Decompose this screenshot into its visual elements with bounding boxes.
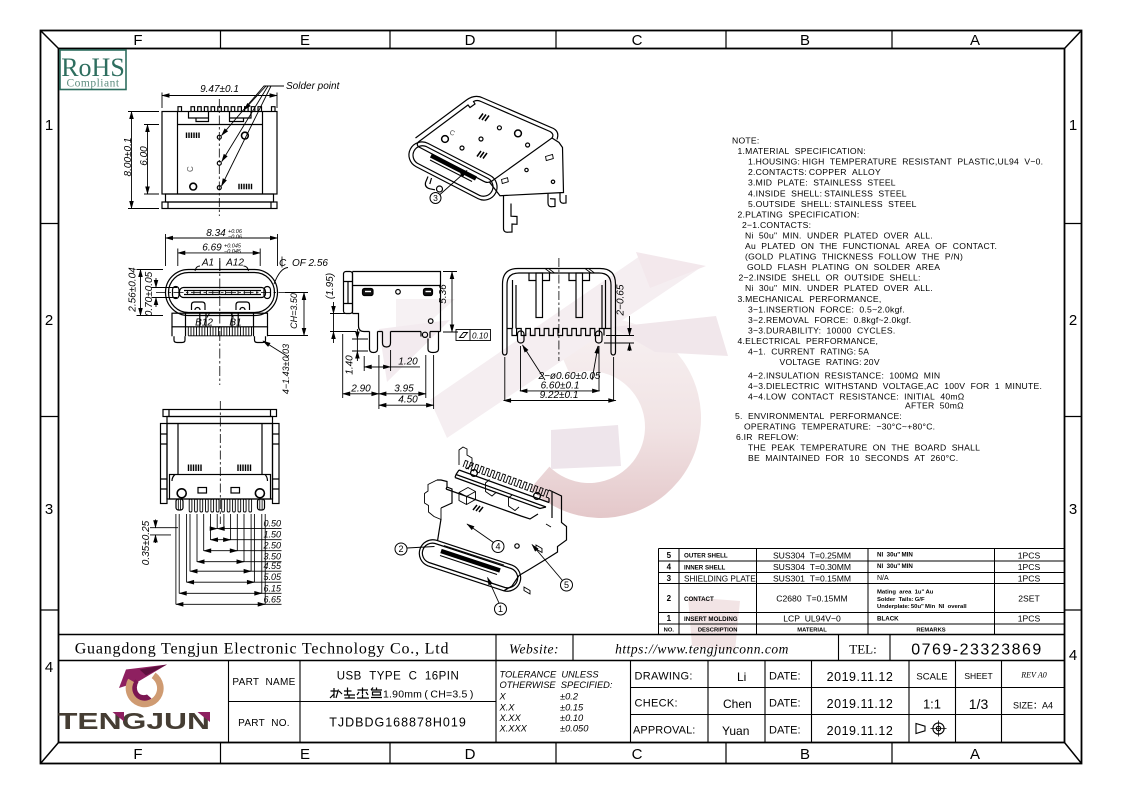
svg-text:INNER SHELL: INNER SHELL bbox=[684, 564, 725, 571]
svg-text:6.00: 6.00 bbox=[139, 146, 150, 166]
svg-text:C: C bbox=[632, 746, 643, 763]
svg-text:CONTACT: CONTACT bbox=[684, 596, 714, 603]
svg-text:B1: B1 bbox=[229, 318, 241, 329]
svg-text:6.15: 6.15 bbox=[263, 583, 282, 593]
svg-text:2: 2 bbox=[667, 594, 672, 603]
svg-text:X.XXX: X.XXX bbox=[499, 724, 528, 734]
svg-text:4−2.INSULATION RESISTANCE: 1: 4−2.INSULATION RESISTANCE: 100MΩ MIN bbox=[748, 371, 940, 381]
svg-text:3.50: 3.50 bbox=[263, 552, 281, 562]
svg-text:4: 4 bbox=[1069, 647, 1077, 664]
svg-text:F: F bbox=[133, 746, 142, 763]
svg-text:5: 5 bbox=[564, 580, 569, 590]
svg-text:3: 3 bbox=[1069, 501, 1077, 518]
svg-text:9.22±0.1: 9.22±0.1 bbox=[540, 390, 579, 401]
svg-text:SHEET: SHEET bbox=[964, 671, 992, 681]
svg-text:4: 4 bbox=[45, 659, 53, 676]
svg-text:SHIELDING PLATE: SHIELDING PLATE bbox=[684, 574, 756, 583]
svg-text:C: C bbox=[632, 32, 643, 49]
svg-text:AFTER 50mΩ: AFTER 50mΩ bbox=[905, 400, 964, 410]
svg-text:OPERATING TEMPERATURE: −30°C: OPERATING TEMPERATURE: −30°C~+80°C. bbox=[744, 421, 935, 431]
svg-text:Au PLATED ON THE FUNCTIONA: Au PLATED ON THE FUNCTIONAL AREA OF CONT… bbox=[745, 241, 997, 251]
svg-text:4: 4 bbox=[667, 562, 672, 571]
svg-text:1/3: 1/3 bbox=[969, 696, 989, 712]
svg-text:3: 3 bbox=[667, 574, 672, 583]
svg-text:SIZE：A4: SIZE：A4 bbox=[1013, 701, 1053, 711]
svg-text:Solder Tails: G/F: Solder Tails: G/F bbox=[877, 597, 925, 603]
svg-text:2.56±0.04: 2.56±0.04 bbox=[128, 267, 139, 313]
svg-text:4.55: 4.55 bbox=[263, 561, 282, 571]
svg-text:TOLERANCE UNLESS: TOLERANCE UNLESS bbox=[500, 670, 600, 680]
svg-text:±0.2: ±0.2 bbox=[560, 692, 579, 702]
svg-text:BLACK: BLACK bbox=[877, 615, 899, 622]
svg-text:2−0.65: 2−0.65 bbox=[616, 284, 627, 316]
svg-text:Solder point: Solder point bbox=[286, 81, 341, 92]
svg-text:5.OUTSIDE SHELL: STAINLESS S: 5.OUTSIDE SHELL: STAINLESS STEEL bbox=[748, 199, 917, 209]
svg-text:CHECK:: CHECK: bbox=[635, 698, 678, 710]
svg-text:±0.050: ±0.050 bbox=[560, 724, 589, 734]
svg-text:REV A0: REV A0 bbox=[1020, 671, 1047, 680]
svg-text:SUS304 T=0.25MM: SUS304 T=0.25MM bbox=[773, 550, 851, 560]
svg-text:GOLD FLASH PLATING ON SOLD: GOLD FLASH PLATING ON SOLDER AREA bbox=[747, 262, 940, 272]
svg-text:Ni 50u" MIN. UNDER PLATED: Ni 50u" MIN. UNDER PLATED OVER ALL. bbox=[745, 231, 933, 241]
svg-text:3: 3 bbox=[433, 193, 438, 203]
svg-text:2.90: 2.90 bbox=[350, 383, 371, 394]
svg-text:±0.10: ±0.10 bbox=[560, 713, 584, 723]
svg-text:NI 30u" MIN: NI 30u" MIN bbox=[877, 552, 913, 559]
svg-text:TENGJUN: TENGJUN bbox=[58, 708, 210, 734]
svg-text:4.50: 4.50 bbox=[398, 395, 418, 406]
svg-text:2019.11.12: 2019.11.12 bbox=[827, 697, 894, 711]
svg-text:5.05: 5.05 bbox=[263, 572, 282, 582]
svg-text:1: 1 bbox=[45, 117, 53, 134]
svg-text:−0.06: −0.06 bbox=[228, 235, 243, 241]
svg-text:±0.15: ±0.15 bbox=[560, 703, 584, 713]
svg-text:APPROVAL:: APPROVAL: bbox=[633, 725, 695, 737]
svg-text:DRAWING:: DRAWING: bbox=[635, 671, 693, 683]
svg-text:1.HOUSING: HIGH TEMPERATURE: 1.HOUSING: HIGH TEMPERATURE RESISTANT PL… bbox=[748, 157, 1043, 167]
svg-text:2.50: 2.50 bbox=[262, 541, 281, 551]
svg-text:5. ENVIRONMENTAL PERFORMANCE: 5. ENVIRONMENTAL PERFORMANCE: bbox=[735, 411, 902, 421]
svg-text:Ni 30u" MIN. UNDER PLATED: Ni 30u" MIN. UNDER PLATED OVER ALL. bbox=[745, 283, 933, 293]
svg-text:1: 1 bbox=[667, 614, 672, 623]
svg-text:0.70±0.05: 0.70±0.05 bbox=[144, 271, 155, 316]
svg-text:Website:: Website: bbox=[509, 642, 559, 657]
svg-text:1PCS: 1PCS bbox=[1018, 562, 1041, 572]
svg-text:OTHERWISE SPECIFIED:: OTHERWISE SPECIFIED: bbox=[500, 680, 613, 690]
svg-text:B: B bbox=[800, 746, 810, 763]
svg-text:3.MID PLATE: STAINLESS STEE: 3.MID PLATE: STAINLESS STEEL bbox=[748, 178, 896, 188]
svg-text:B12: B12 bbox=[195, 318, 213, 329]
svg-text:DATE:: DATE: bbox=[769, 698, 801, 710]
svg-text:1.40: 1.40 bbox=[345, 355, 356, 375]
svg-text:C: C bbox=[186, 166, 195, 172]
svg-text:DATE:: DATE: bbox=[769, 671, 801, 683]
svg-text:1.90mm ( CH=3.5 ): 1.90mm ( CH=3.5 ) bbox=[383, 689, 474, 701]
svg-text:1PCS: 1PCS bbox=[1018, 613, 1041, 623]
svg-text:USB TYPE C 16PIN: USB TYPE C 16PIN bbox=[337, 671, 460, 683]
svg-text:4−1.43±0.03: 4−1.43±0.03 bbox=[281, 344, 291, 394]
svg-text:6.65: 6.65 bbox=[263, 594, 282, 604]
svg-text:SCALE: SCALE bbox=[916, 672, 947, 683]
svg-text:4: 4 bbox=[495, 542, 500, 552]
svg-text:CH=3.50: CH=3.50 bbox=[289, 293, 299, 329]
svg-text:NOTE:: NOTE: bbox=[732, 136, 760, 146]
svg-text:Underplate: 50u" Min NI over: Underplate: 50u" Min NI overall bbox=[877, 604, 967, 610]
svg-text:Guangdong Tengjun Electronic T: Guangdong Tengjun Electronic Technology … bbox=[75, 641, 450, 658]
svg-text:C2680 T=0.15MM: C2680 T=0.15MM bbox=[776, 593, 847, 603]
svg-text:−0.045: −0.045 bbox=[224, 249, 242, 255]
svg-text:F: F bbox=[133, 32, 142, 49]
svg-text:2−2.INSIDE SHELL OR OUTSIDE: 2−2.INSIDE SHELL OR OUTSIDE SHELL: bbox=[739, 273, 921, 283]
svg-text:2019.11.12: 2019.11.12 bbox=[827, 670, 894, 684]
svg-text:INSERT MOLDING: INSERT MOLDING bbox=[684, 616, 738, 623]
svg-text:1.50: 1.50 bbox=[263, 530, 281, 540]
svg-text:NI 30u" MIN: NI 30u" MIN bbox=[877, 563, 913, 570]
svg-text:OF 2.56: OF 2.56 bbox=[292, 258, 328, 269]
svg-text:4.ELECTRICAL PERFORMANCE,: 4.ELECTRICAL PERFORMANCE, bbox=[738, 336, 879, 346]
svg-text:0.35±0.25: 0.35±0.25 bbox=[141, 520, 152, 565]
svg-text:4−3.DIELECTRIC WITHSTAND VOL: 4−3.DIELECTRIC WITHSTAND VOLTAGE,AC 100V… bbox=[748, 381, 1042, 391]
svg-text:VOLTAGE RATING: 20V: VOLTAGE RATING: 20V bbox=[780, 357, 880, 367]
svg-text:3−2.REMOVAL FORCE: 0.8kgf~2.: 3−2.REMOVAL FORCE: 0.8kgf~2.0kgf. bbox=[748, 315, 911, 325]
svg-text:1PCS: 1PCS bbox=[1018, 550, 1041, 560]
svg-text:B: B bbox=[800, 32, 810, 49]
svg-text:0.50: 0.50 bbox=[263, 519, 281, 529]
svg-text:2: 2 bbox=[1069, 312, 1077, 329]
svg-text:8.34: 8.34 bbox=[206, 228, 226, 239]
svg-text:A: A bbox=[970, 32, 980, 49]
svg-text:D: D bbox=[465, 746, 476, 763]
svg-text:SUS304 T=0.30MM: SUS304 T=0.30MM bbox=[773, 562, 851, 572]
svg-text:1.MATERIAL SPECIFICATION:: 1.MATERIAL SPECIFICATION: bbox=[738, 146, 866, 156]
svg-text:NO.: NO. bbox=[664, 628, 675, 634]
svg-text:2019.11.12: 2019.11.12 bbox=[827, 724, 894, 738]
svg-text:2.PLATING SPECIFICATION:: 2.PLATING SPECIFICATION: bbox=[738, 209, 860, 219]
svg-text:D: D bbox=[465, 32, 476, 49]
svg-text:Mating area 1u" Au: Mating area 1u" Au bbox=[877, 590, 934, 596]
svg-text:https://www.tengjunconn.com: https://www.tengjunconn.com bbox=[615, 642, 789, 657]
svg-text:X: X bbox=[499, 692, 507, 702]
svg-text:LCP UL94V−0: LCP UL94V−0 bbox=[783, 613, 841, 623]
svg-text:3−1.INSERTION FORCE: 0.5~2.0: 3−1.INSERTION FORCE: 0.5~2.0kgf. bbox=[748, 304, 905, 314]
svg-text:2: 2 bbox=[398, 544, 403, 554]
svg-text:6.69: 6.69 bbox=[202, 243, 222, 254]
svg-text:Chen: Chen bbox=[723, 697, 752, 711]
svg-text:2SET: 2SET bbox=[1018, 593, 1040, 603]
svg-text:0.10: 0.10 bbox=[472, 331, 488, 340]
svg-text:2: 2 bbox=[45, 312, 53, 329]
svg-text:1PCS: 1PCS bbox=[1018, 573, 1041, 583]
svg-text:A1: A1 bbox=[201, 258, 214, 269]
svg-text:5: 5 bbox=[667, 551, 672, 560]
svg-text:2−1.CONTACTS:: 2−1.CONTACTS: bbox=[742, 220, 811, 230]
svg-text:X.XX: X.XX bbox=[499, 713, 522, 723]
svg-text:BE MAINTAINED FOR 10 SECON: BE MAINTAINED FOR 10 SECONDS AT 260°C. bbox=[748, 453, 958, 463]
svg-text:PART NAME: PART NAME bbox=[232, 677, 295, 688]
svg-text:A12: A12 bbox=[225, 258, 244, 269]
svg-text:1.20: 1.20 bbox=[398, 356, 418, 367]
svg-text:Compliant: Compliant bbox=[66, 78, 119, 90]
svg-text:8.00±0.1: 8.00±0.1 bbox=[123, 138, 134, 177]
svg-text:C: C bbox=[279, 258, 287, 269]
svg-text:DESCRIPTION: DESCRIPTION bbox=[698, 628, 738, 634]
svg-text:1:1: 1:1 bbox=[923, 697, 941, 712]
svg-text:9.47±0.1: 9.47±0.1 bbox=[200, 84, 239, 95]
svg-text:2.CONTACTS: COPPER ALLOY: 2.CONTACTS: COPPER ALLOY bbox=[748, 167, 881, 177]
svg-text:0769-23323869: 0769-23323869 bbox=[911, 642, 1043, 659]
svg-text:REMARKS: REMARKS bbox=[916, 628, 945, 634]
svg-text:(GOLD PLATING THICKNESS FOL: (GOLD PLATING THICKNESS FOLLOW THE P/N) bbox=[745, 252, 963, 262]
svg-text:PART NO.: PART NO. bbox=[238, 718, 290, 729]
svg-text:6.IR REFLOW:: 6.IR REFLOW: bbox=[736, 432, 799, 442]
svg-text:3.MECHANICAL PERFORMANCE,: 3.MECHANICAL PERFORMANCE, bbox=[738, 294, 882, 304]
svg-text:1: 1 bbox=[1069, 117, 1077, 134]
svg-text:A: A bbox=[970, 746, 980, 763]
svg-text:3: 3 bbox=[45, 501, 53, 518]
svg-text:5.36: 5.36 bbox=[438, 284, 449, 304]
svg-text:E: E bbox=[300, 32, 310, 49]
svg-text:TEL:: TEL: bbox=[849, 642, 876, 657]
svg-text:TJDBDG168878H019: TJDBDG168878H019 bbox=[329, 716, 467, 730]
svg-text:THE PEAK TEMPERATURE ON TH: THE PEAK TEMPERATURE ON THE BOARD SHALL bbox=[748, 443, 980, 453]
svg-text:4.INSIDE SHELL: STAINLESS ST: 4.INSIDE SHELL: STAINLESS STEEL bbox=[748, 188, 907, 198]
svg-text:SUS301 T=0.15MM: SUS301 T=0.15MM bbox=[773, 573, 851, 583]
svg-text:E: E bbox=[300, 746, 310, 763]
svg-text:1: 1 bbox=[498, 604, 503, 614]
svg-text:Li: Li bbox=[737, 670, 746, 684]
svg-text:Yuan: Yuan bbox=[722, 724, 749, 738]
svg-text:(1.95): (1.95) bbox=[325, 273, 336, 299]
svg-text:3−3.DURABILITY: 10000 CYCLES: 3−3.DURABILITY: 10000 CYCLES. bbox=[748, 325, 895, 335]
svg-text:3.95: 3.95 bbox=[394, 383, 414, 394]
svg-text:N/A: N/A bbox=[877, 575, 889, 582]
svg-text:4−1. CURRENT RATING: 5A: 4−1. CURRENT RATING: 5A bbox=[748, 347, 869, 357]
svg-text:X.X: X.X bbox=[499, 703, 516, 713]
svg-text:DATE:: DATE: bbox=[769, 725, 801, 737]
svg-text:OUTER SHELL: OUTER SHELL bbox=[684, 553, 728, 560]
svg-text:MATERIAL: MATERIAL bbox=[797, 628, 827, 634]
